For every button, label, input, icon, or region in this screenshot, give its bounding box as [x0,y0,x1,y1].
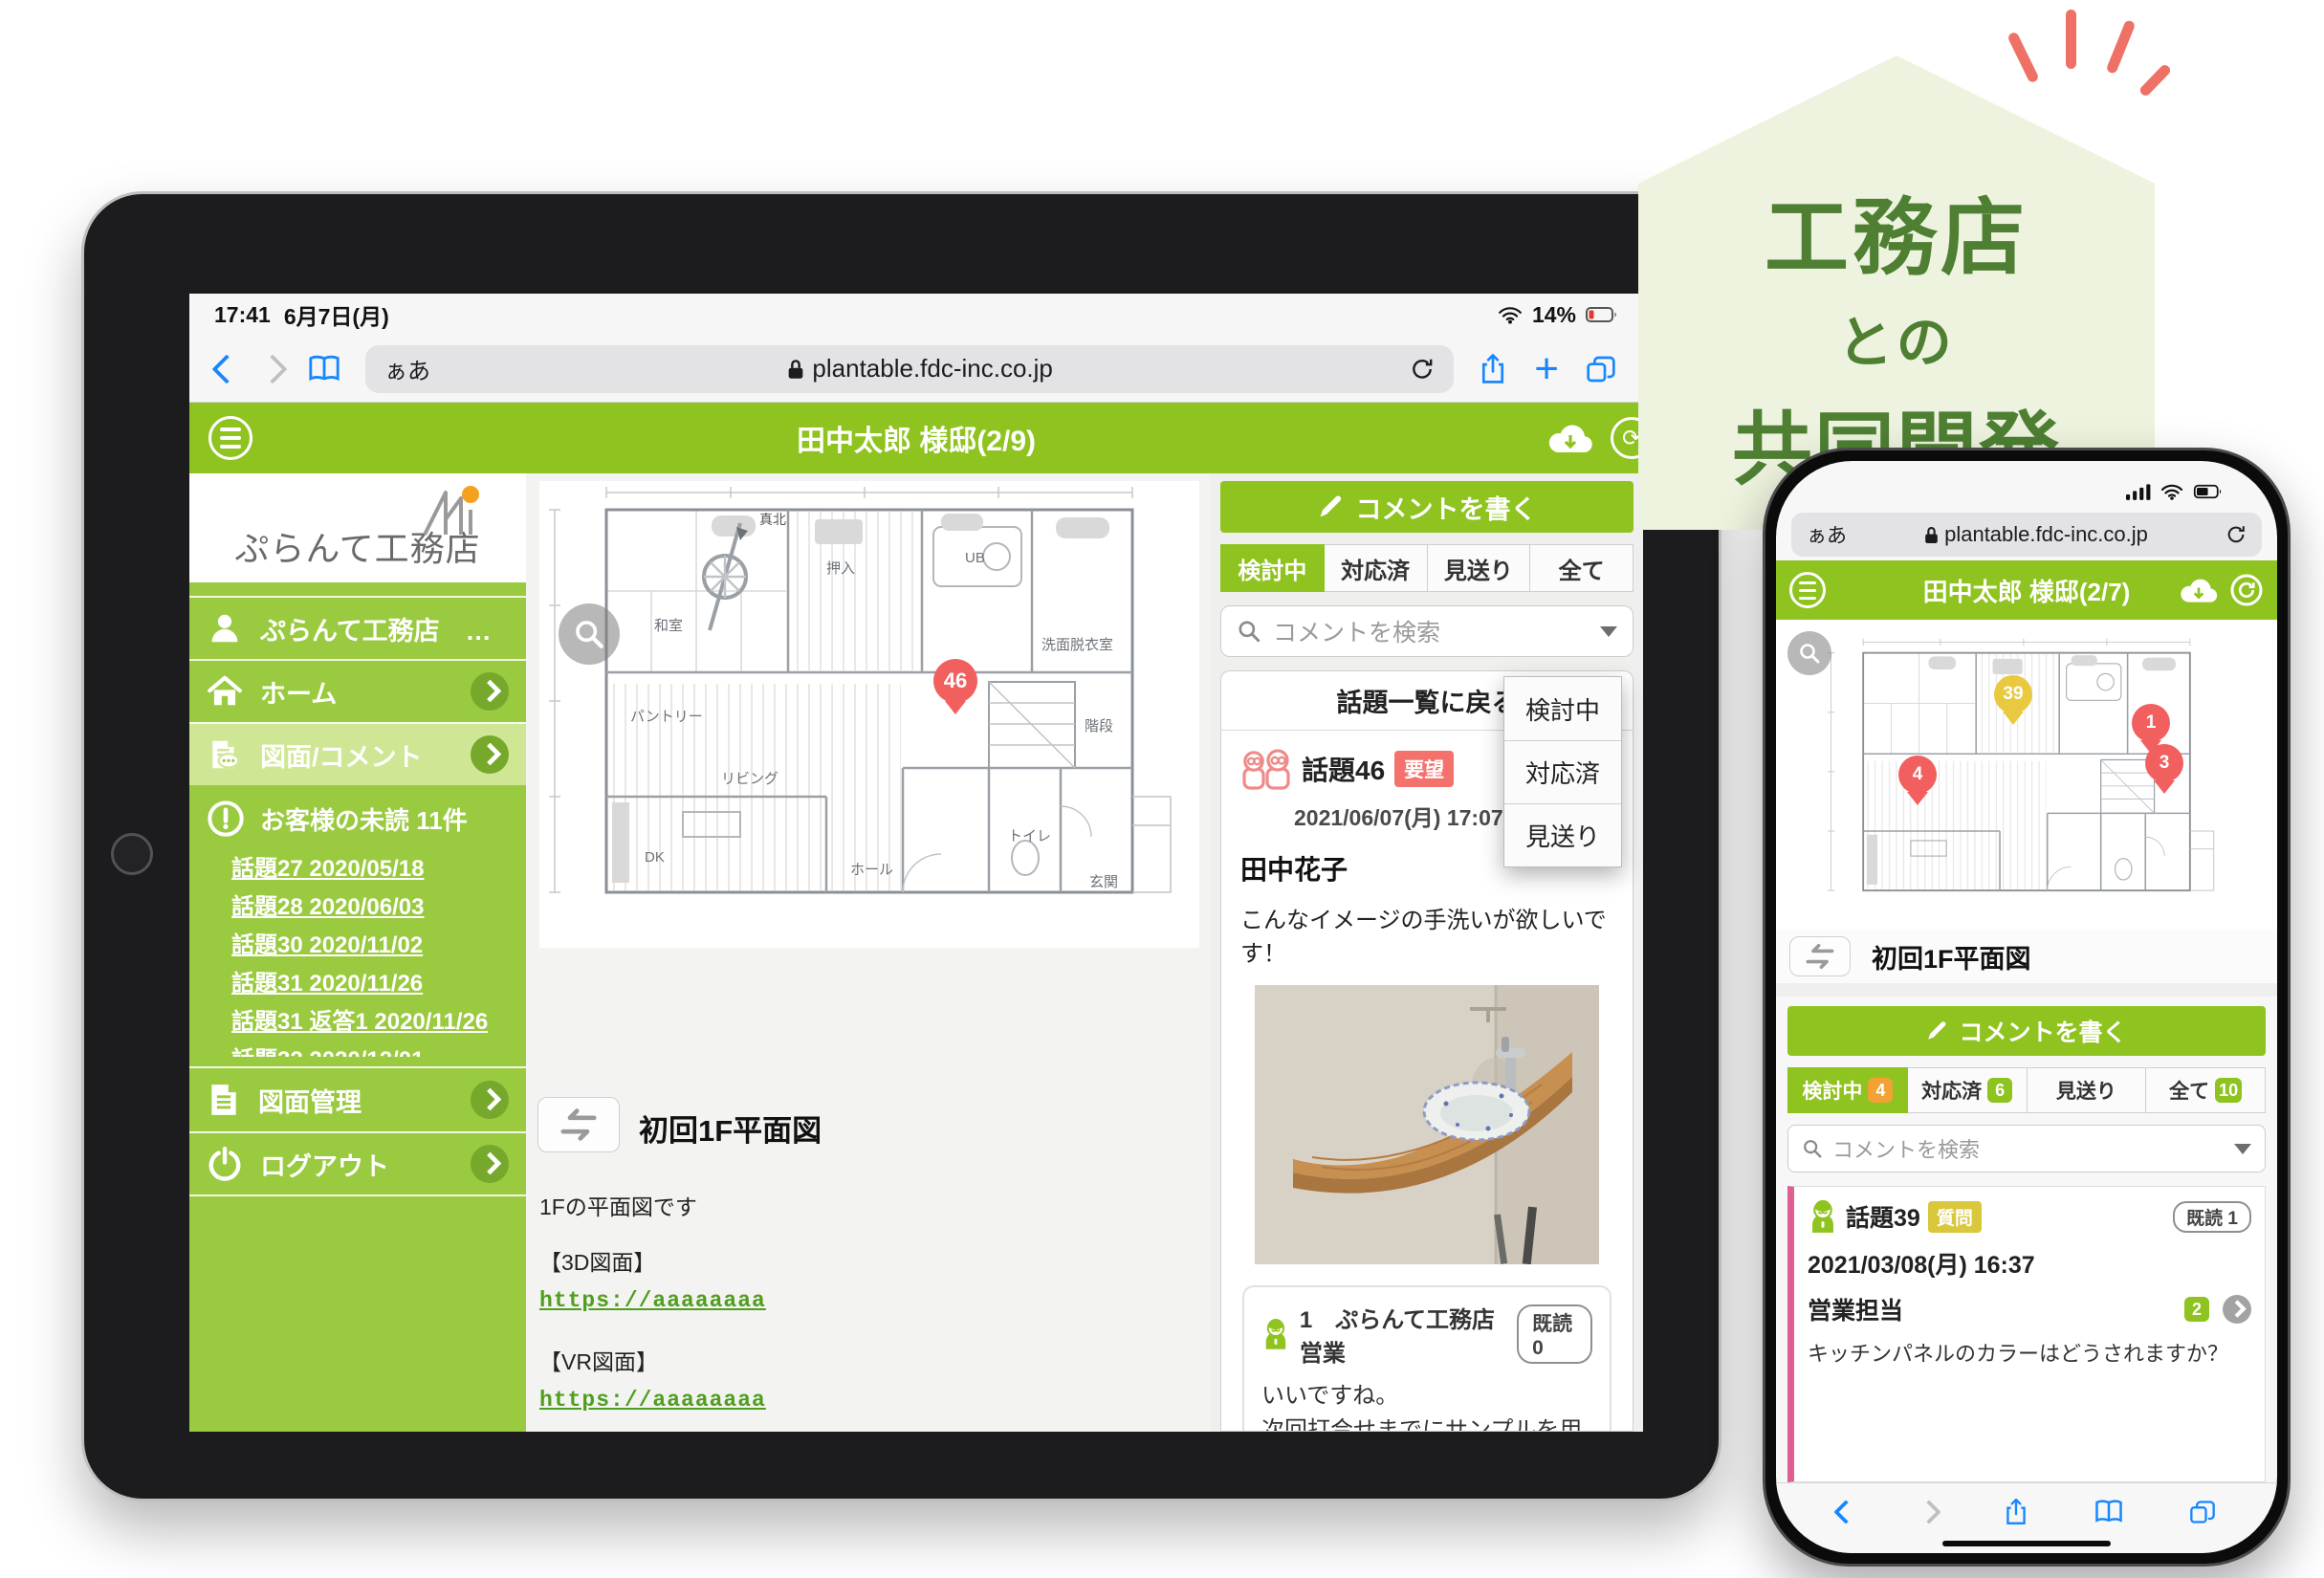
sidebar: ぷらんて工務店 ぷらんて工務店 … ホーム 図面/コメント [189,473,526,1432]
battery-percent: 14% [1532,302,1576,328]
iphone-floor-plan[interactable]: 39 1 3 4 [1776,620,2277,930]
tab-kentochu[interactable]: 検討中 4 [1787,1067,1908,1113]
menu-item-label: 対応済 [1525,755,1600,790]
topic-tag-badge: 要望 [1394,751,1454,787]
confetti-stroke [2006,31,2039,83]
pencil-icon [1926,1020,1947,1041]
iphone-screen: ぁあ plantable.fdc-inc.co.jp 田中太郎 様邸(2/7) [1776,461,2277,1553]
wifi-icon [1498,305,1523,324]
company-logo: ぷらんて工務店 [189,473,526,582]
tabs-icon[interactable] [1586,355,1616,384]
alert-icon [207,800,245,838]
reader-button[interactable]: ぁあ [384,352,430,385]
topic-name: 話題46 [1302,750,1385,788]
url-host: plantable.fdc-inc.co.jp [812,354,1052,384]
compass-label: 真北 [759,510,786,529]
room-label: 階段 [1085,715,1113,735]
back-icon[interactable] [211,354,241,384]
tab-count-badge: 4 [1868,1078,1893,1103]
power-icon [207,1146,243,1182]
sidebar-item-logout[interactable]: ログアウト [189,1131,526,1194]
magnifier-icon [1798,642,1821,665]
drawing-area: 真北 和室 押入 パントリー UB 洗面脱衣室 リビング 階段 DK ホール ト… [526,473,1211,1432]
unread-header: お客様の未読 11件 [189,791,526,846]
topic-link[interactable]: 話題31 2020/11/26 [231,965,516,1003]
sidebar-item-label: ログアウト [260,1146,389,1183]
refresh-icon[interactable] [2229,573,2264,607]
ipad-screen: 17:41 6月7日(月) 14% ぁあ [189,294,1643,1432]
tab-label: 検討中 [1238,552,1306,585]
menu-item-taiozumi[interactable]: 対応済 [1504,740,1621,803]
cloud-download-icon[interactable] [1546,420,1595,456]
status-date: 6月7日(月) [284,298,389,331]
staff-avatar-icon [1808,1198,1838,1235]
compass-icon [683,519,769,634]
swap-icon [558,1107,600,1142]
tab-miokuri[interactable]: 見送り [2028,1067,2147,1113]
write-comment-label: コメントを書く [1356,489,1537,526]
sidebar-item-label: ぷらんて工務店 … [260,610,492,647]
room-label: 玄関 [1089,871,1118,891]
status-tabs: 検討中 4 対応済 6 見送り 全て 10 [1787,1067,2266,1113]
stage: 17:41 6月7日(月) 14% ぁあ [0,0,2324,1578]
photo-sink-illustration [1255,985,1599,1264]
sidebar-item-home[interactable]: ホーム [189,659,526,722]
reader-button[interactable]: ぁあ [1807,520,1847,549]
document-icon [207,1082,241,1118]
topic-link-list: 話題27 2020/05/18 話題28 2020/06/03 話題30 202… [189,846,526,1057]
tab-label: 対応済 [1341,552,1410,585]
iphone-app-header: 田中太郎 様邸(2/7) [1776,560,2277,620]
address-bar[interactable]: ぁあ plantable.fdc-inc.co.jp [365,345,1454,393]
share-icon[interactable] [2004,1498,2028,1526]
link-vr[interactable]: https://aaaaaaaa [539,1388,766,1413]
topic-card[interactable]: 話題39 質問 既読 1 2021/03/08(月) 16:37 営業担当 2 … [1787,1186,2266,1482]
tabs-icon[interactable] [2189,1500,2216,1524]
topic-name: 話題39 [1846,1199,1920,1234]
room-label: 和室 [654,615,683,635]
plan-pin-46[interactable]: 46 [933,659,977,703]
tab-miokuri[interactable]: 見送り [1428,544,1531,592]
swap-drawing-button[interactable] [1789,936,1851,976]
back-icon[interactable] [1834,1500,1858,1523]
sidebar-item-label: 図面管理 [258,1082,362,1119]
tab-label: 見送り [2056,1076,2116,1105]
chevron-right-icon [471,1145,509,1183]
menu-item-label: 見送り [1525,818,1600,853]
chevron-right-icon [471,672,509,711]
tab-count-badge: 6 [1987,1078,2012,1103]
topic-message: キッチンパネルのカラーはどうされますか？ [1808,1338,2251,1370]
room-label: 洗面脱衣室 [1041,634,1113,654]
iphone-drawing-row: 初回1F平面図 [1776,930,2277,983]
home-indicator[interactable] [1942,1541,2111,1546]
sidebar-item-manage[interactable]: 図面管理 [189,1068,526,1131]
write-comment-button[interactable]: コメントを書く [1220,481,1633,533]
promo-line-2: との [1837,297,1955,378]
reply-count-badge: 2 [2184,1297,2209,1322]
zoom-lens-button[interactable] [559,603,620,665]
pencil-icon [1318,494,1343,519]
tab-label: 検討中 [1802,1076,1862,1105]
search-dropdown-icon[interactable] [1600,626,1617,637]
topic-link[interactable]: 話題30 2020/11/02 [231,927,516,965]
search-icon [1802,1138,1823,1159]
room-label: リビング [721,768,778,788]
bookmarks-icon[interactable] [308,355,340,384]
couple-avatar-icon [1240,746,1292,792]
lock-icon [787,359,804,380]
tab-subete[interactable]: 全て [1530,544,1633,592]
url-host: plantable.fdc-inc.co.jp [1944,522,2148,547]
safari-toolbar: ぁあ plantable.fdc-inc.co.jp + [189,336,1643,403]
topic-author: 営業担当 [1808,1292,1903,1326]
iphone-safari-toolbar [1776,1482,2277,1553]
topic-link-clipped[interactable]: 話題32 2020/12/01 [231,1041,516,1057]
room-label: UB [965,550,985,566]
tab-label: 対応済 [1921,1076,1982,1105]
label-3d: 【3D図面】 [539,1244,655,1277]
comment-panel: コメントを書く 検討中 対応済 見送り 全て コメントを検索 話題一覧 [1211,473,1643,1432]
plan-pin-39[interactable]: 39 [1994,675,2032,713]
drawing-title: 初回1F平面図 [639,1107,822,1150]
iphone-status-bar [1776,461,2277,509]
reply-org: ぷらんて工務店 営業 [1300,1307,1518,1367]
iphone-address-row: ぁあ plantable.fdc-inc.co.jp [1776,509,2277,560]
read-count-badge[interactable]: 既読 0 [1517,1304,1592,1364]
topic-photo[interactable] [1255,985,1599,1264]
topic-link[interactable]: 話題28 2020/06/03 [231,888,516,927]
search-placeholder: コメントを検索 [1832,1133,2225,1164]
battery-icon [2193,484,2224,499]
room-label: パントリー [630,706,703,726]
room-label: トイレ [1008,825,1051,845]
back-to-topics-label: 話題一覧に戻る [1337,682,1518,719]
drawing-description: 1Fの平面図です [539,1189,697,1221]
plan-pin-4[interactable]: 4 [1898,756,1937,794]
cloud-download-icon[interactable] [2178,575,2220,605]
drawing-title: 初回1F平面図 [1872,938,2031,975]
status-dropdown-menu: 検討中 対応済 見送り [1503,676,1622,867]
refresh-button[interactable]: ⟳ [1611,417,1643,459]
tab-subete[interactable]: 全て 10 [2146,1067,2266,1113]
topic-link[interactable]: 話題27 2020/05/18 [231,850,516,888]
status-tabs: 検討中 対応済 見送り 全て [1220,544,1633,592]
ipad-device: 17:41 6月7日(月) 14% ぁあ [81,191,1721,1501]
comment-search-input[interactable]: コメントを検索 [1787,1125,2266,1173]
comment-search-input[interactable]: コメントを検索 [1220,605,1633,657]
tab-count-badge: 10 [2215,1078,2242,1103]
reply-card: 1 ぷらんて工務店 営業 既読 0 いいですね。 次回打合せまでにサンプルを用意… [1242,1285,1611,1432]
lock-icon [1924,526,1939,544]
tab-kentochu[interactable]: 検討中 [1220,544,1325,592]
bookmarks-icon[interactable] [2094,1500,2123,1524]
search-placeholder: コメントを検索 [1273,614,1589,648]
home-icon [207,673,243,710]
label-vr: 【VR図面】 [539,1344,658,1376]
swap-drawing-button[interactable] [537,1097,620,1152]
menu-item-kentochu[interactable]: 検討中 [1504,677,1621,740]
write-comment-button[interactable]: コメントを書く [1787,1006,2266,1056]
share-icon[interactable] [1479,353,1507,385]
magnifier-icon [573,618,605,650]
reply-line-1: いいですね。 [1261,1379,1592,1414]
sidebar-item-label: 図面/コメント [260,736,423,774]
wifi-icon [2160,483,2183,500]
chevron-right-icon [471,735,509,774]
sidebar-item-label: ホーム [260,673,337,711]
iphone-device: ぁあ plantable.fdc-inc.co.jp 田中太郎 様邸(2/7) [1763,448,2291,1567]
menu-item-label: 検討中 [1525,691,1600,727]
room-label: 押入 [826,558,855,578]
tab-label: 全て [1559,552,1605,585]
write-comment-label: コメントを書く [1959,1014,2126,1048]
promo-line-1: 工務店 [1765,170,2028,292]
reply-number: 1 [1300,1307,1312,1333]
topic-tag-badge: 質問 [1928,1201,1982,1233]
search-dropdown-icon[interactable] [2234,1144,2251,1154]
drawing-comment-icon [207,736,243,773]
confetti-stroke [2138,63,2173,98]
floor-plan[interactable]: 真北 和室 押入 パントリー UB 洗面脱衣室 リビング 階段 DK ホール ト… [539,481,1199,948]
plan-pin-1[interactable]: 1 [2132,704,2170,742]
tab-taiozumi[interactable]: 対応済 6 [1908,1067,2028,1113]
tab-label: 見送り [1444,552,1513,585]
user-icon [207,610,243,647]
reload-icon[interactable] [2225,524,2247,545]
forward-icon[interactable] [1917,1500,1940,1523]
read-count-badge[interactable]: 既読 1 [2173,1201,2251,1233]
ipad-status-bar: 17:41 6月7日(月) 14% [189,294,1643,336]
battery-icon [1586,306,1618,323]
reload-icon[interactable] [1410,357,1435,382]
sidebar-item-account[interactable]: ぷらんて工務店 … [189,596,526,659]
ipad-camera [111,833,153,875]
topic-link[interactable]: 話題31 返答1 2020/11/26 [231,1003,516,1041]
zoom-lens-button[interactable] [1787,631,1831,675]
swap-icon [1804,943,1836,970]
plan-pin-3[interactable]: 3 [2145,744,2183,782]
room-label: DK [645,849,665,866]
sidebar-item-plans[interactable]: 図面/コメント [189,722,526,785]
page-title: 田中太郎 様邸(2/9) [189,417,1643,459]
forward-icon[interactable] [257,354,287,384]
staff-avatar-icon [1261,1313,1290,1355]
link-3d[interactable]: https://aaaaaaaa [539,1288,766,1313]
tab-taiozumi[interactable]: 対応済 [1325,544,1428,592]
search-icon [1237,619,1261,644]
app-header: 田中太郎 様邸(2/9) ⟳ [189,403,1643,473]
confetti-stroke [2066,10,2076,69]
logo-house-icon [417,481,484,537]
chevron-right-icon [471,1081,509,1119]
tab-label: 全て [2169,1076,2209,1105]
signal-icon [2126,483,2151,500]
topic-message: こんなイメージの手洗いが欲しいです！ [1240,901,1613,968]
confetti-stroke [2106,19,2137,75]
new-tab-icon[interactable]: + [1534,348,1559,390]
menu-item-miokuri[interactable]: 見送り [1504,803,1621,866]
iphone-address-bar[interactable]: ぁあ plantable.fdc-inc.co.jp [1791,513,2262,557]
room-label: ホール [850,859,893,879]
status-time: 17:41 [214,302,271,328]
topic-datetime: 2021/03/08(月) 16:37 [1808,1246,2251,1281]
floor-plan-drawing [1801,635,2252,914]
chevron-right-icon[interactable] [2223,1295,2251,1324]
app-content: ぷらんて工務店 ぷらんて工務店 … ホーム 図面/コメント [189,473,1643,1432]
unread-label: お客様の未読 11件 [260,801,468,837]
reply-line-2: 次回打合せまでにサンプルを用意致します。 [1261,1414,1592,1432]
